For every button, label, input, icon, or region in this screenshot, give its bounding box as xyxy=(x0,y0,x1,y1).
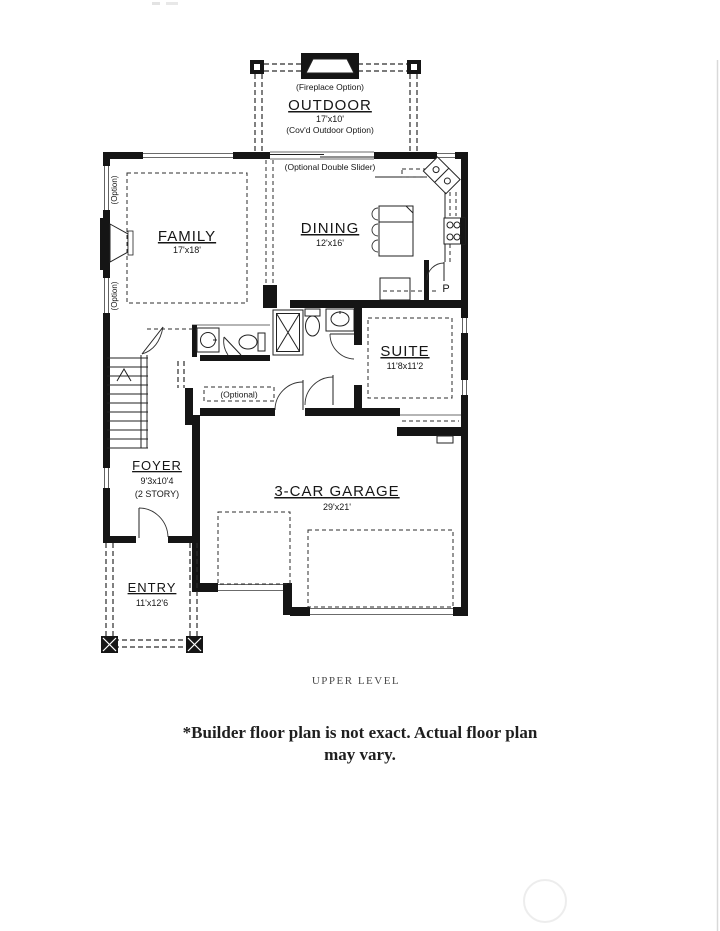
watermark-circle xyxy=(524,880,566,922)
garage-step xyxy=(437,436,453,443)
family-door-leaf xyxy=(142,327,163,354)
top-wall: (Optional Double Slider) xyxy=(103,152,468,172)
dining-dims: 12'x16' xyxy=(316,238,344,248)
disclaimer-line1: *Builder floor plan is not exact. Actual… xyxy=(183,723,538,742)
garage-door-track xyxy=(308,530,453,607)
floor-plan-drawing: (Fireplace Option) OUTDOOR 17'x10' (Cov'… xyxy=(0,0,720,931)
suite-sink-icon xyxy=(326,309,354,331)
foyer-dims: 9'3x10'4 xyxy=(141,476,174,486)
powder-door-arc xyxy=(224,337,228,355)
stairs-icon xyxy=(107,355,148,448)
outdoor-note: (Cov'd Outdoor Option) xyxy=(286,125,374,135)
suite-toilet-icon xyxy=(305,309,320,336)
level-label: UPPER LEVEL xyxy=(312,675,400,687)
pantry-label: P xyxy=(442,283,449,295)
pantry: P xyxy=(424,260,450,302)
garage-dims: 29'x21' xyxy=(323,502,351,512)
shower-icon xyxy=(273,310,303,355)
disclaimer-line2: may vary. xyxy=(324,745,396,764)
kitchen-sink-icon xyxy=(423,157,460,194)
family-room: FAMILY 17'x18' xyxy=(127,160,277,308)
porch-post xyxy=(101,636,118,653)
room-label-dining: DINING xyxy=(301,220,360,237)
outdoor-area: (Fireplace Option) OUTDOOR 17'x10' (Cov'… xyxy=(250,53,421,152)
powder-sink-icon xyxy=(197,328,219,352)
room-label-entry: ENTRY xyxy=(128,580,177,595)
fireplace-option-label: (Fireplace Option) xyxy=(296,82,364,92)
garage-door-arc xyxy=(275,382,303,410)
left-wall: (Option) (Option) xyxy=(100,152,133,543)
porch-post xyxy=(186,636,203,653)
room-label-suite: SUITE xyxy=(380,343,429,360)
entry-dims: 11'x12'6 xyxy=(136,598,168,608)
suite-dims: 11'8x11'2 xyxy=(387,361,424,371)
range-icon xyxy=(444,218,465,244)
window-option-label-top: (Option) xyxy=(110,175,119,204)
dining-kitchen: DINING 12'x16' xyxy=(290,157,468,308)
suite-door-arc xyxy=(305,377,333,405)
front-door-arc xyxy=(139,508,168,537)
stairs-up-arrow xyxy=(117,369,131,381)
foyer: FOYER 9'3x10'4 (2 STORY) xyxy=(107,327,200,590)
island-icon xyxy=(372,206,413,256)
optional-hall-label: (Optional) xyxy=(220,390,257,400)
room-label-outdoor: OUTDOOR xyxy=(288,97,372,114)
floor-plan-page: (Fireplace Option) OUTDOOR 17'x10' (Cov'… xyxy=(0,0,720,931)
powder-toilet-icon xyxy=(239,333,265,351)
family-dims: 17'x18' xyxy=(173,245,201,255)
family-fireplace-icon xyxy=(100,218,133,270)
suite-room: SUITE 11'8x11'2 xyxy=(340,300,468,443)
scan-artifacts xyxy=(152,2,718,931)
room-label-garage: 3-CAR GARAGE xyxy=(274,483,399,500)
footer: UPPER LEVEL *Builder floor plan is not e… xyxy=(183,675,538,764)
slider-option-label: (Optional Double Slider) xyxy=(285,162,376,172)
garage-room: 3-CAR GARAGE 29'x21' xyxy=(192,408,468,616)
window-option-label-bottom: (Option) xyxy=(110,281,119,310)
entry-porch: ENTRY 11'x12'6 xyxy=(101,508,203,653)
bathrooms xyxy=(192,309,354,361)
foyer-note: (2 STORY) xyxy=(135,489,179,499)
room-label-family: FAMILY xyxy=(158,228,216,245)
room-label-foyer: FOYER xyxy=(132,458,182,473)
fireplace-icon xyxy=(301,53,359,79)
outdoor-dims: 17'x10' xyxy=(316,114,344,124)
pantry-door-arc xyxy=(427,263,444,280)
suite-bath-door-arc xyxy=(330,334,354,359)
garage-door-track xyxy=(218,512,290,584)
